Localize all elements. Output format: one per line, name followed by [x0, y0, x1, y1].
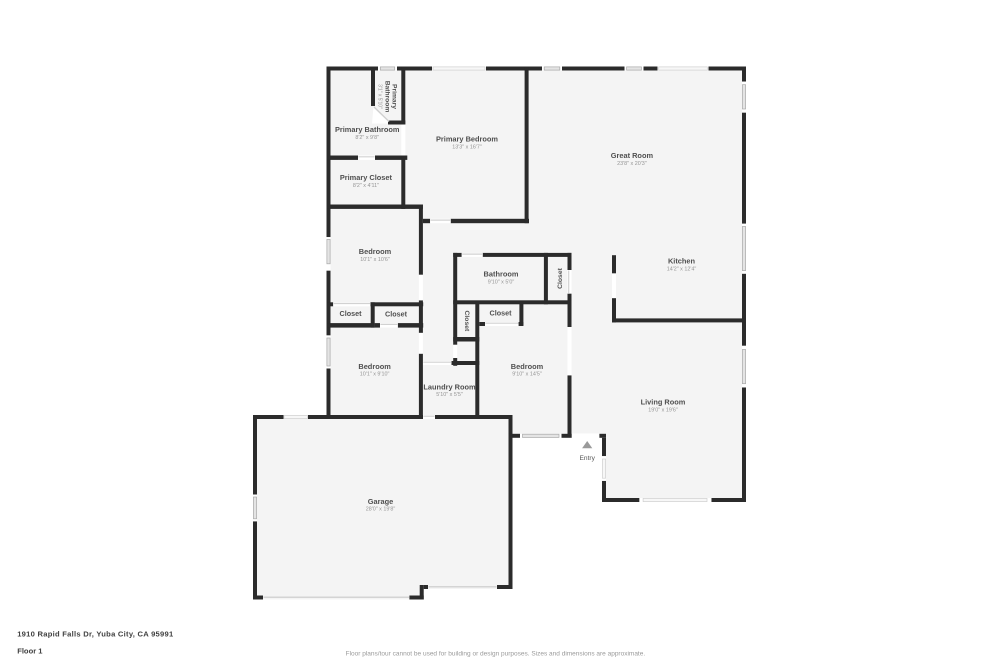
- svg-text:Floor plans/tour cannot be use: Floor plans/tour cannot be used for buil…: [346, 651, 646, 658]
- svg-text:Closet: Closet: [463, 311, 470, 333]
- svg-text:Bedroom: Bedroom: [358, 362, 391, 371]
- svg-text:Laundry Room: Laundry Room: [423, 382, 476, 391]
- svg-text:Great Room: Great Room: [611, 151, 654, 160]
- svg-text:5'10" x 5'5": 5'10" x 5'5": [436, 392, 463, 398]
- svg-text:8'2" x 4'11": 8'2" x 4'11": [353, 183, 379, 189]
- svg-text:Closet: Closet: [340, 309, 363, 318]
- svg-text:1910 Rapid Falls Dr, Yuba City: 1910 Rapid Falls Dr, Yuba City, CA 95991: [17, 630, 174, 639]
- svg-text:13'3" x 16'7": 13'3" x 16'7": [452, 144, 482, 150]
- svg-text:10'1" x 9'10": 10'1" x 9'10": [360, 372, 390, 378]
- svg-text:Kitchen: Kitchen: [668, 257, 696, 266]
- svg-text:Primary: Primary: [391, 84, 398, 109]
- svg-text:Bathroom: Bathroom: [383, 81, 390, 113]
- svg-text:Primary Bedroom: Primary Bedroom: [436, 135, 498, 144]
- svg-text:8'2" x 9'8": 8'2" x 9'8": [355, 135, 379, 141]
- svg-text:Entry: Entry: [580, 455, 596, 462]
- svg-text:Bathroom: Bathroom: [484, 270, 519, 279]
- svg-text:Garage: Garage: [368, 497, 393, 506]
- svg-text:3'1" x 5'10": 3'1" x 5'10": [376, 84, 382, 109]
- svg-text:Bedroom: Bedroom: [359, 247, 392, 256]
- svg-text:Living Room: Living Room: [641, 398, 686, 407]
- svg-text:Primary Bathroom: Primary Bathroom: [335, 125, 400, 134]
- svg-text:9'10" x 14'5": 9'10" x 14'5": [512, 372, 542, 378]
- svg-text:Bedroom: Bedroom: [511, 362, 544, 371]
- svg-text:28'0" x 19'8": 28'0" x 19'8": [366, 507, 396, 513]
- svg-text:Closet: Closet: [385, 310, 408, 319]
- svg-text:Floor 1: Floor 1: [17, 646, 43, 655]
- svg-text:Closet: Closet: [557, 267, 564, 289]
- svg-text:9'10" x 5'0": 9'10" x 5'0": [488, 280, 515, 286]
- svg-text:10'1" x 10'6": 10'1" x 10'6": [360, 257, 390, 263]
- svg-text:19'0" x 19'6": 19'0" x 19'6": [648, 407, 678, 413]
- svg-text:23'8" x 20'3": 23'8" x 20'3": [617, 161, 647, 167]
- svg-text:14'2" x 12'4": 14'2" x 12'4": [667, 267, 697, 273]
- svg-text:Closet: Closet: [490, 309, 513, 318]
- svg-text:Primary Closet: Primary Closet: [340, 173, 393, 182]
